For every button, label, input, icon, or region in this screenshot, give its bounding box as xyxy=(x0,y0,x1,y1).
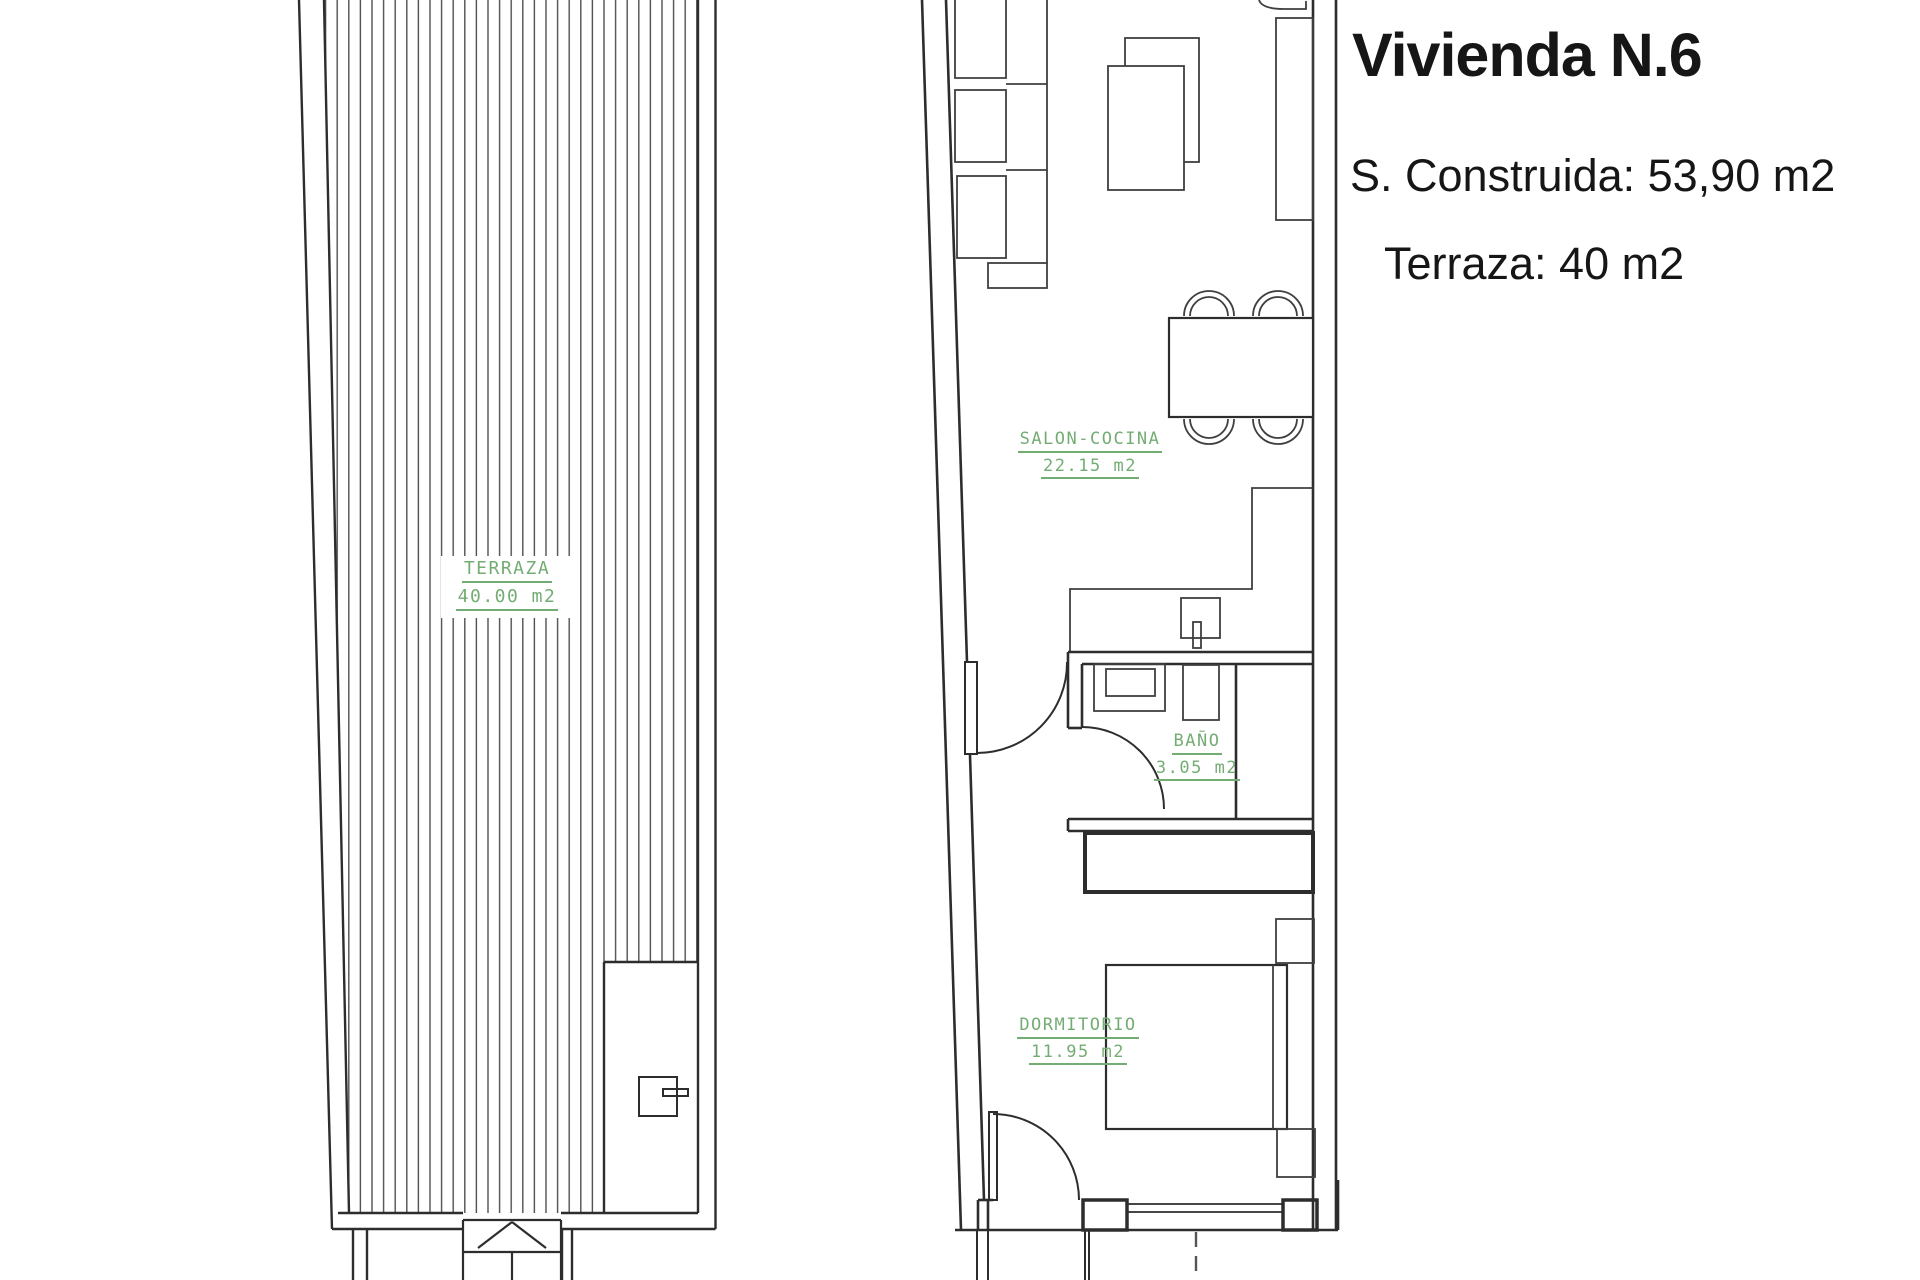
window-jamb xyxy=(1083,1200,1127,1230)
terrace-walkway xyxy=(604,962,698,1213)
washbasin-bowl xyxy=(1106,669,1155,696)
chair-arc xyxy=(1259,297,1297,316)
hob-sink-tab xyxy=(1193,622,1201,648)
bedroom-door xyxy=(989,1112,1079,1200)
label-dormitorio: DORMITORIO 11.95 m2 xyxy=(1008,1016,1148,1069)
chair-arc xyxy=(1184,419,1234,444)
kitchen-counter-L xyxy=(1070,488,1313,652)
room-area: 40.00 m2 xyxy=(456,587,559,611)
chair-arc xyxy=(1253,419,1303,444)
room-area: 22.15 m2 xyxy=(1041,457,1139,480)
terrace-area-text: Terraza: 40 m2 xyxy=(1384,238,1684,290)
sofa-armrest xyxy=(988,263,1047,288)
room-area: 11.95 m2 xyxy=(1029,1043,1127,1066)
dining-set xyxy=(1169,291,1313,444)
room-name: DORMITORIO xyxy=(1017,1016,1138,1039)
toilet xyxy=(1183,665,1219,720)
dwelling-title: Vivienda N.6 xyxy=(1352,20,1702,90)
stairs-block xyxy=(463,1220,561,1280)
nightstand-bottom xyxy=(1277,1129,1315,1177)
apartment-bottom-wall xyxy=(955,1180,1338,1230)
label-salon-cocina: SALON-COCINA 22.15 m2 xyxy=(1012,430,1168,483)
built-area-text: S. Construida: 53,90 m2 xyxy=(1350,150,1835,202)
terrace-gate-handle xyxy=(663,1089,688,1096)
apartment-plan xyxy=(922,0,1338,1280)
room-name: SALON-COCINA xyxy=(1018,430,1163,453)
entrance-door-swing-arc xyxy=(977,662,1067,753)
kitchen-counter-top xyxy=(1259,0,1313,220)
nightstand-top xyxy=(1276,919,1314,963)
room-area: 3.05 m2 xyxy=(1154,759,1240,782)
coffee-table xyxy=(1108,38,1199,190)
bedroom-door-swing-arc xyxy=(993,1114,1079,1200)
room-name: BAÑO xyxy=(1172,732,1223,755)
chair-arc xyxy=(1253,291,1303,316)
stairs-arrow-left xyxy=(478,1222,512,1248)
room-name: TERRAZA xyxy=(462,559,552,583)
label-terraza: TERRAZA 40.00 m2 xyxy=(441,556,573,618)
entrance-door xyxy=(965,662,1067,754)
chair-arc xyxy=(1190,419,1228,438)
dining-table xyxy=(1169,318,1313,417)
sink-fixture-cut xyxy=(1259,0,1306,9)
chair-arc xyxy=(1190,297,1228,316)
label-bano: BAÑO 3.05 m2 xyxy=(1142,732,1252,785)
sofa xyxy=(955,0,1047,288)
terrace-plan xyxy=(299,0,716,1280)
floorplan-page: TERRAZA 40.00 m2 SALON-COCINA 22.15 m2 B… xyxy=(0,0,1920,1280)
chair-arc xyxy=(1184,291,1234,316)
apartment-wall-left-outer xyxy=(922,0,961,1230)
chair-arc xyxy=(1259,419,1297,438)
stairs-arrow-right xyxy=(512,1222,546,1248)
wardrobe xyxy=(1085,833,1313,892)
below-plan-lines xyxy=(977,1230,1196,1280)
info-panel: Vivienda N.6 S. Construida: 53,90 m2 Ter… xyxy=(1350,0,1910,320)
